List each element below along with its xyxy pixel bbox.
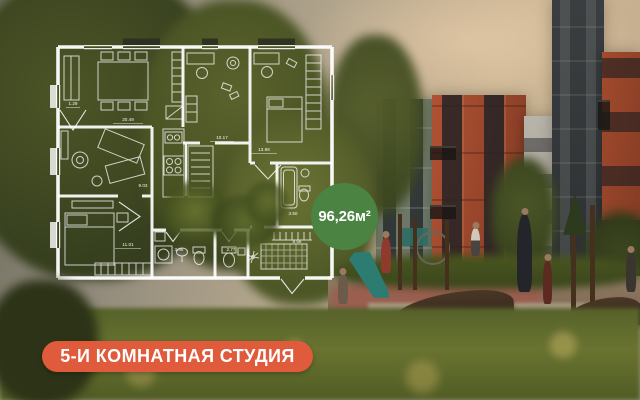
room-label-wc: 2.77 [227,247,236,252]
foreground-plant [247,182,287,224]
room-label-hallway: 8.56 [293,239,302,244]
room-label-study: 10.17 [216,135,228,140]
room-label-lounge: 9.03 [139,183,148,188]
foreground-bush [0,280,98,400]
room-label-bathroom: 3.86 [175,247,184,252]
room-label-bay: 1.29 [69,101,78,106]
room-label-bedroom-right: 13.98 [258,147,270,152]
title-banner-label: 5-И КОМНАТНАЯ СТУДИЯ [60,346,295,367]
interior-walls [58,47,332,278]
area-badge-label: 96,26м² [318,208,370,225]
room-label-bathroom-right: 3.50 [289,211,298,216]
promo-card: 20.49 1.29 10.17 13.98 9.03 11.01 3.86 2… [0,0,640,400]
title-banner: 5-И КОМНАТНАЯ СТУДИЯ [42,341,313,372]
area-badge: 96,26м² [311,183,378,250]
room-label-dining: 20.49 [122,117,134,122]
room-label-bedroom-left: 11.01 [122,242,134,247]
window-exterior-marks-left [50,85,57,248]
